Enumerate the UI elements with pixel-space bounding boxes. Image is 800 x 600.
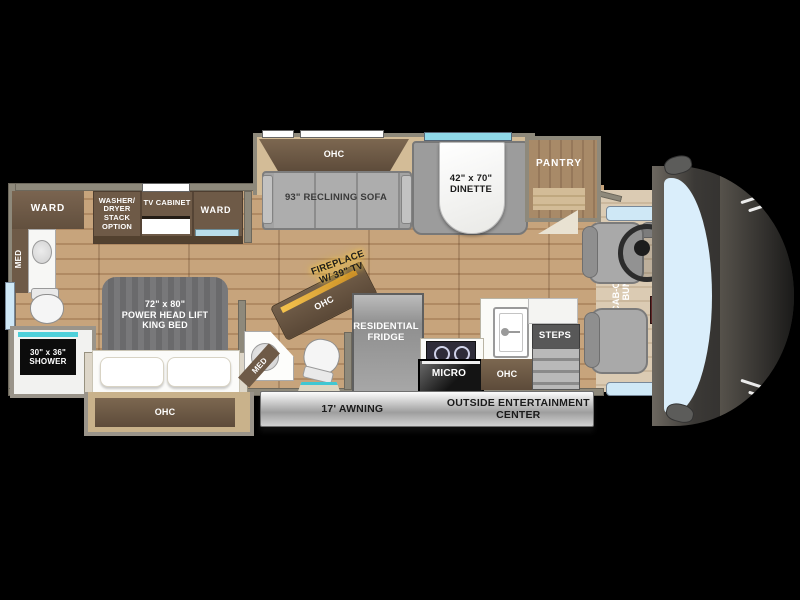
ward-right-label: WARD bbox=[192, 203, 240, 217]
wall-bath-right bbox=[344, 332, 352, 390]
steering-hub-icon bbox=[634, 240, 650, 256]
rv-floorplan: OHC 93" RECLINING SOFA 42" x 70" DINETTE… bbox=[0, 0, 800, 600]
entry-landing bbox=[528, 298, 578, 324]
wall-hall bbox=[244, 191, 252, 243]
awning-label: 17' AWNING bbox=[261, 403, 444, 415]
med-left-label: MED bbox=[12, 234, 26, 284]
pantry-label: PANTRY bbox=[527, 156, 591, 172]
pillow-left bbox=[100, 357, 164, 387]
windshield bbox=[664, 178, 712, 414]
tv-icon bbox=[142, 216, 190, 234]
rv-front-body bbox=[652, 166, 794, 426]
sink-left-icon bbox=[32, 240, 52, 264]
ward-left-label: WARD bbox=[12, 201, 84, 217]
window-bath-left bbox=[5, 282, 15, 330]
passenger-seat-back bbox=[584, 312, 600, 368]
driver-seat-back bbox=[582, 226, 598, 278]
fridge-label: RESIDENTIAL FRIDGE bbox=[352, 318, 420, 348]
faucet-arm-icon bbox=[508, 331, 520, 333]
kitchen-ohc-label: OHC bbox=[481, 366, 533, 382]
pillow-right bbox=[167, 357, 231, 387]
unit-ledge bbox=[94, 236, 242, 243]
sofa-ohc-label: OHC bbox=[294, 146, 374, 162]
window-sofa-left bbox=[262, 130, 294, 138]
window-bedroom-top bbox=[142, 183, 190, 192]
toilet-left-icon bbox=[30, 294, 64, 324]
pantry-floor bbox=[533, 188, 585, 210]
entertainment-label: OUTSIDE ENTERTAINMENT CENTER bbox=[444, 397, 593, 421]
window-dinette bbox=[424, 132, 512, 141]
king-bed-label: 72" x 80" POWER HEAD LIFT KING BED bbox=[102, 290, 228, 340]
window-sofa-right bbox=[300, 130, 384, 138]
bed-ohc-label: OHC bbox=[95, 404, 235, 420]
dinette-label: 42" x 70" DINETTE bbox=[436, 170, 506, 200]
shower-label: 30" x 36" SHOWER bbox=[20, 341, 76, 373]
kitchen-sink-icon bbox=[493, 307, 529, 358]
washer-dryer-label: WASHER/ DRYER STACK OPTION bbox=[94, 194, 140, 234]
sofa-label: 93" RECLINING SOFA bbox=[266, 190, 406, 206]
micro-label: MICRO bbox=[418, 366, 480, 382]
shower-threshold bbox=[18, 332, 78, 337]
awning-bar: 17' AWNING OUTSIDE ENTERTAINMENT CENTER bbox=[260, 391, 594, 427]
steps-treads bbox=[532, 348, 580, 390]
wall-top-left bbox=[8, 183, 258, 191]
steps-label: STEPS bbox=[532, 328, 578, 344]
tv-cabinet-label: TV CABINET bbox=[140, 197, 194, 209]
